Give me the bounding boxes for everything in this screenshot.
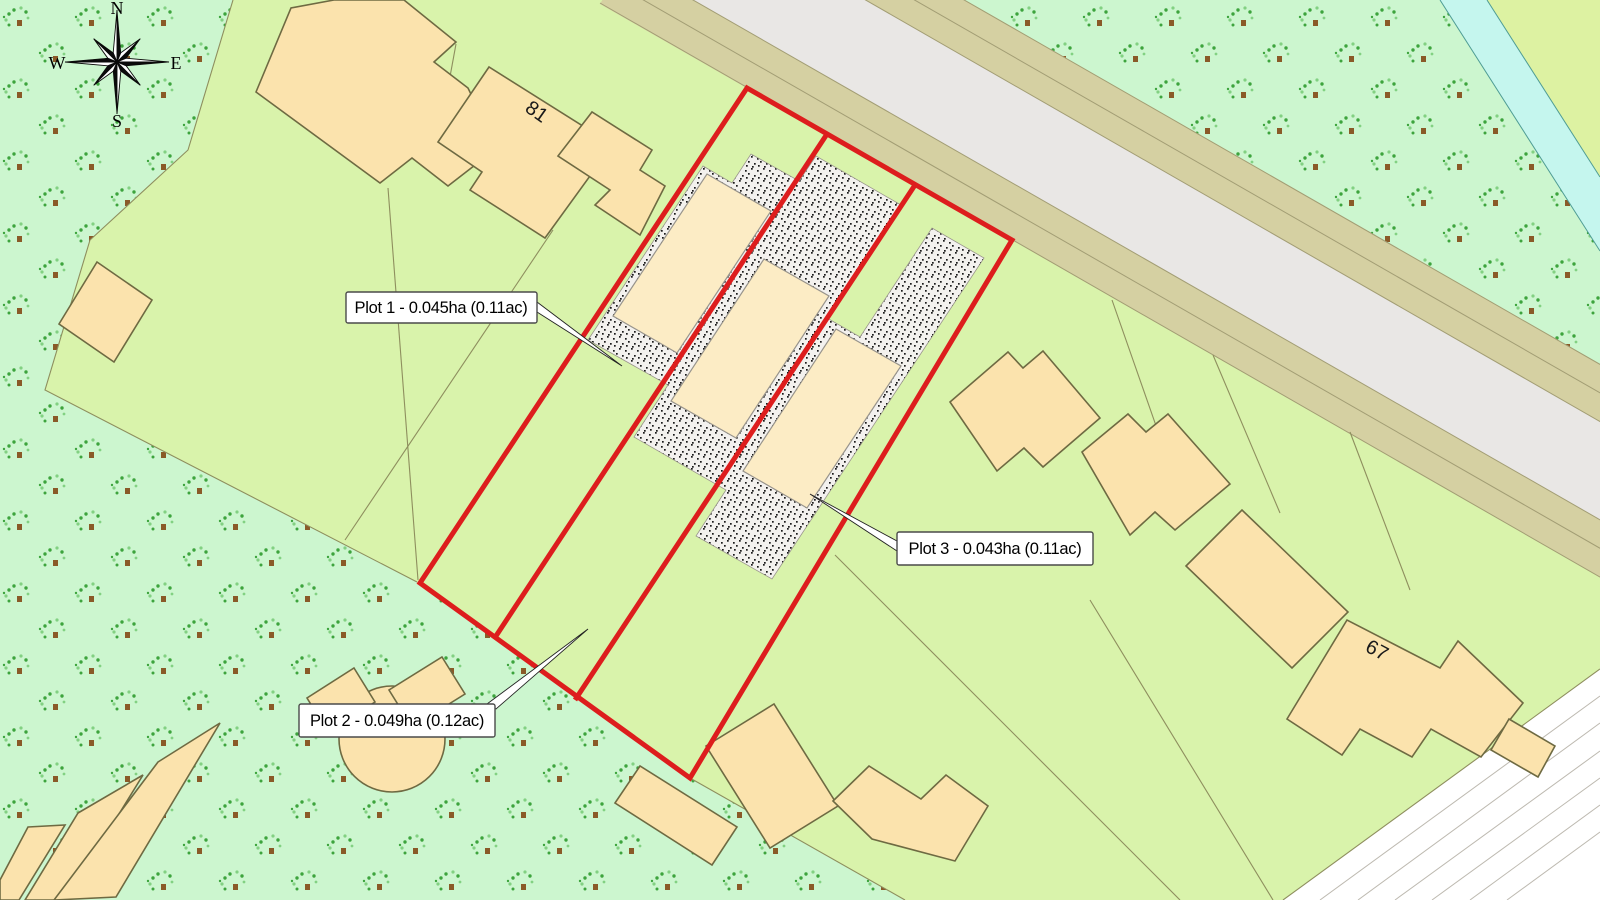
compass-n-label: N — [111, 0, 124, 18]
compass-w-label: W — [49, 53, 66, 73]
compass-s-label: S — [112, 111, 122, 131]
site-plan-map: Plot 1 - 0.045ha (0.11ac) Plot 2 - 0.049… — [0, 0, 1600, 900]
plot-2-label: Plot 2 - 0.049ha (0.12ac) — [310, 712, 484, 730]
plot-1-label: Plot 1 - 0.045ha (0.11ac) — [355, 299, 528, 317]
site-plan-canvas: Plot 1 - 0.045ha (0.11ac) Plot 2 - 0.049… — [0, 0, 1600, 900]
plot-3-label: Plot 3 - 0.043ha (0.11ac) — [909, 540, 1082, 558]
compass-e-label: E — [171, 53, 182, 73]
